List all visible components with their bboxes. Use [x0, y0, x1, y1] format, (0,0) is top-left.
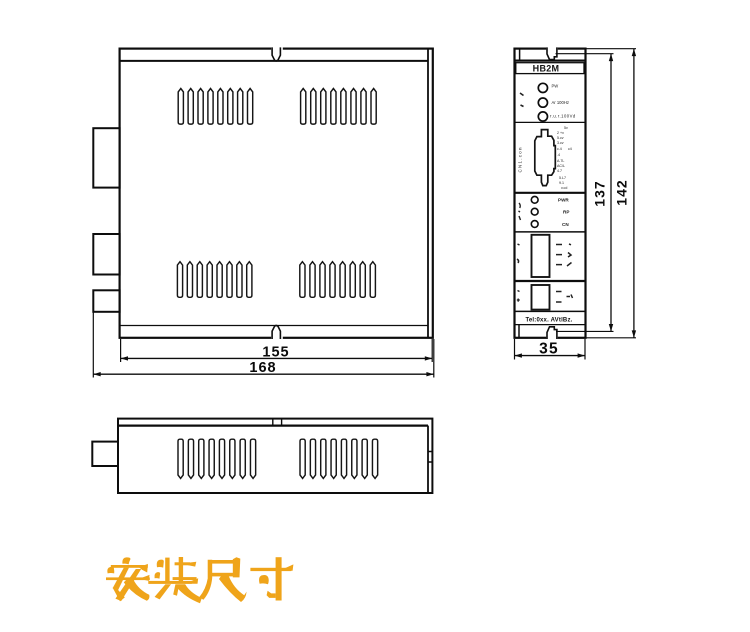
svg-text:PWR: PWR: [558, 198, 569, 203]
svg-text:155: 155: [262, 344, 289, 360]
svg-text:168: 168: [249, 360, 276, 376]
svg-text:PW: PW: [552, 84, 559, 89]
svg-text:9.1: 9.1: [559, 181, 564, 185]
svg-text:Ar 100Hz: Ar 100Hz: [552, 100, 569, 105]
svg-text:RP: RP: [563, 210, 569, 215]
svg-text:35: 35: [539, 341, 559, 358]
svg-text:c4: c4: [568, 147, 572, 151]
svg-text:c.4: c.4: [557, 147, 562, 151]
svg-text:.4: .4: [557, 153, 560, 157]
svg-text:5v: 5v: [564, 126, 568, 130]
svg-text:137: 137: [592, 180, 608, 206]
svg-text:r.u.r.100Vd: r.u.r.100Vd: [550, 114, 576, 119]
svg-text:AC/L: AC/L: [557, 164, 565, 168]
svg-text:CN: CN: [562, 222, 569, 227]
svg-text:142: 142: [614, 179, 630, 205]
svg-text:4.7: 4.7: [557, 169, 562, 173]
svg-text:5.L7: 5.L7: [559, 176, 566, 180]
svg-text:HB2M: HB2M: [533, 64, 560, 74]
svg-text:v.cd: v.cd: [561, 186, 567, 190]
svg-text:C N 1 . c o n: C N 1 . c o n: [518, 147, 523, 173]
svg-text:5.cv: 5.cv: [557, 136, 564, 140]
svg-text:Tel:0xx. AVtlBz.: Tel:0xx. AVtlBz.: [525, 318, 572, 324]
svg-text:A.7L: A.7L: [557, 159, 564, 163]
svg-text:3.cv: 3.cv: [557, 141, 564, 145]
svg-text:2 +v: 2 +v: [557, 131, 564, 135]
